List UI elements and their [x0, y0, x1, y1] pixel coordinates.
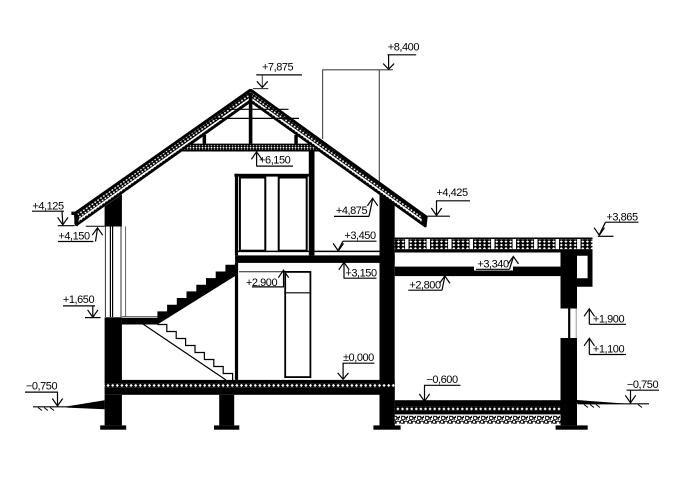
svg-text:+3,340: +3,340 [477, 258, 509, 270]
svg-text:+4,875: +4,875 [336, 205, 368, 217]
svg-text:+1,900: +1,900 [593, 313, 625, 325]
svg-text:+3,450: +3,450 [344, 230, 376, 242]
svg-text:+6,150: +6,150 [259, 155, 291, 167]
svg-text:+1,650: +1,650 [63, 294, 95, 306]
svg-text:±0,000: ±0,000 [343, 352, 374, 364]
svg-text:+4,150: +4,150 [58, 231, 90, 243]
svg-text:+2,800: +2,800 [409, 279, 441, 291]
svg-text:+7,875: +7,875 [262, 61, 294, 73]
svg-text:+3,150: +3,150 [345, 267, 377, 279]
svg-text:+1,100: +1,100 [593, 344, 625, 356]
svg-text:−0,750: −0,750 [627, 379, 659, 391]
svg-text:+4,425: +4,425 [436, 187, 468, 199]
svg-text:+4,125: +4,125 [32, 200, 64, 212]
svg-text:−0,750: −0,750 [26, 381, 58, 393]
svg-text:+8,400: +8,400 [388, 41, 420, 53]
svg-text:−0,600: −0,600 [426, 374, 458, 386]
